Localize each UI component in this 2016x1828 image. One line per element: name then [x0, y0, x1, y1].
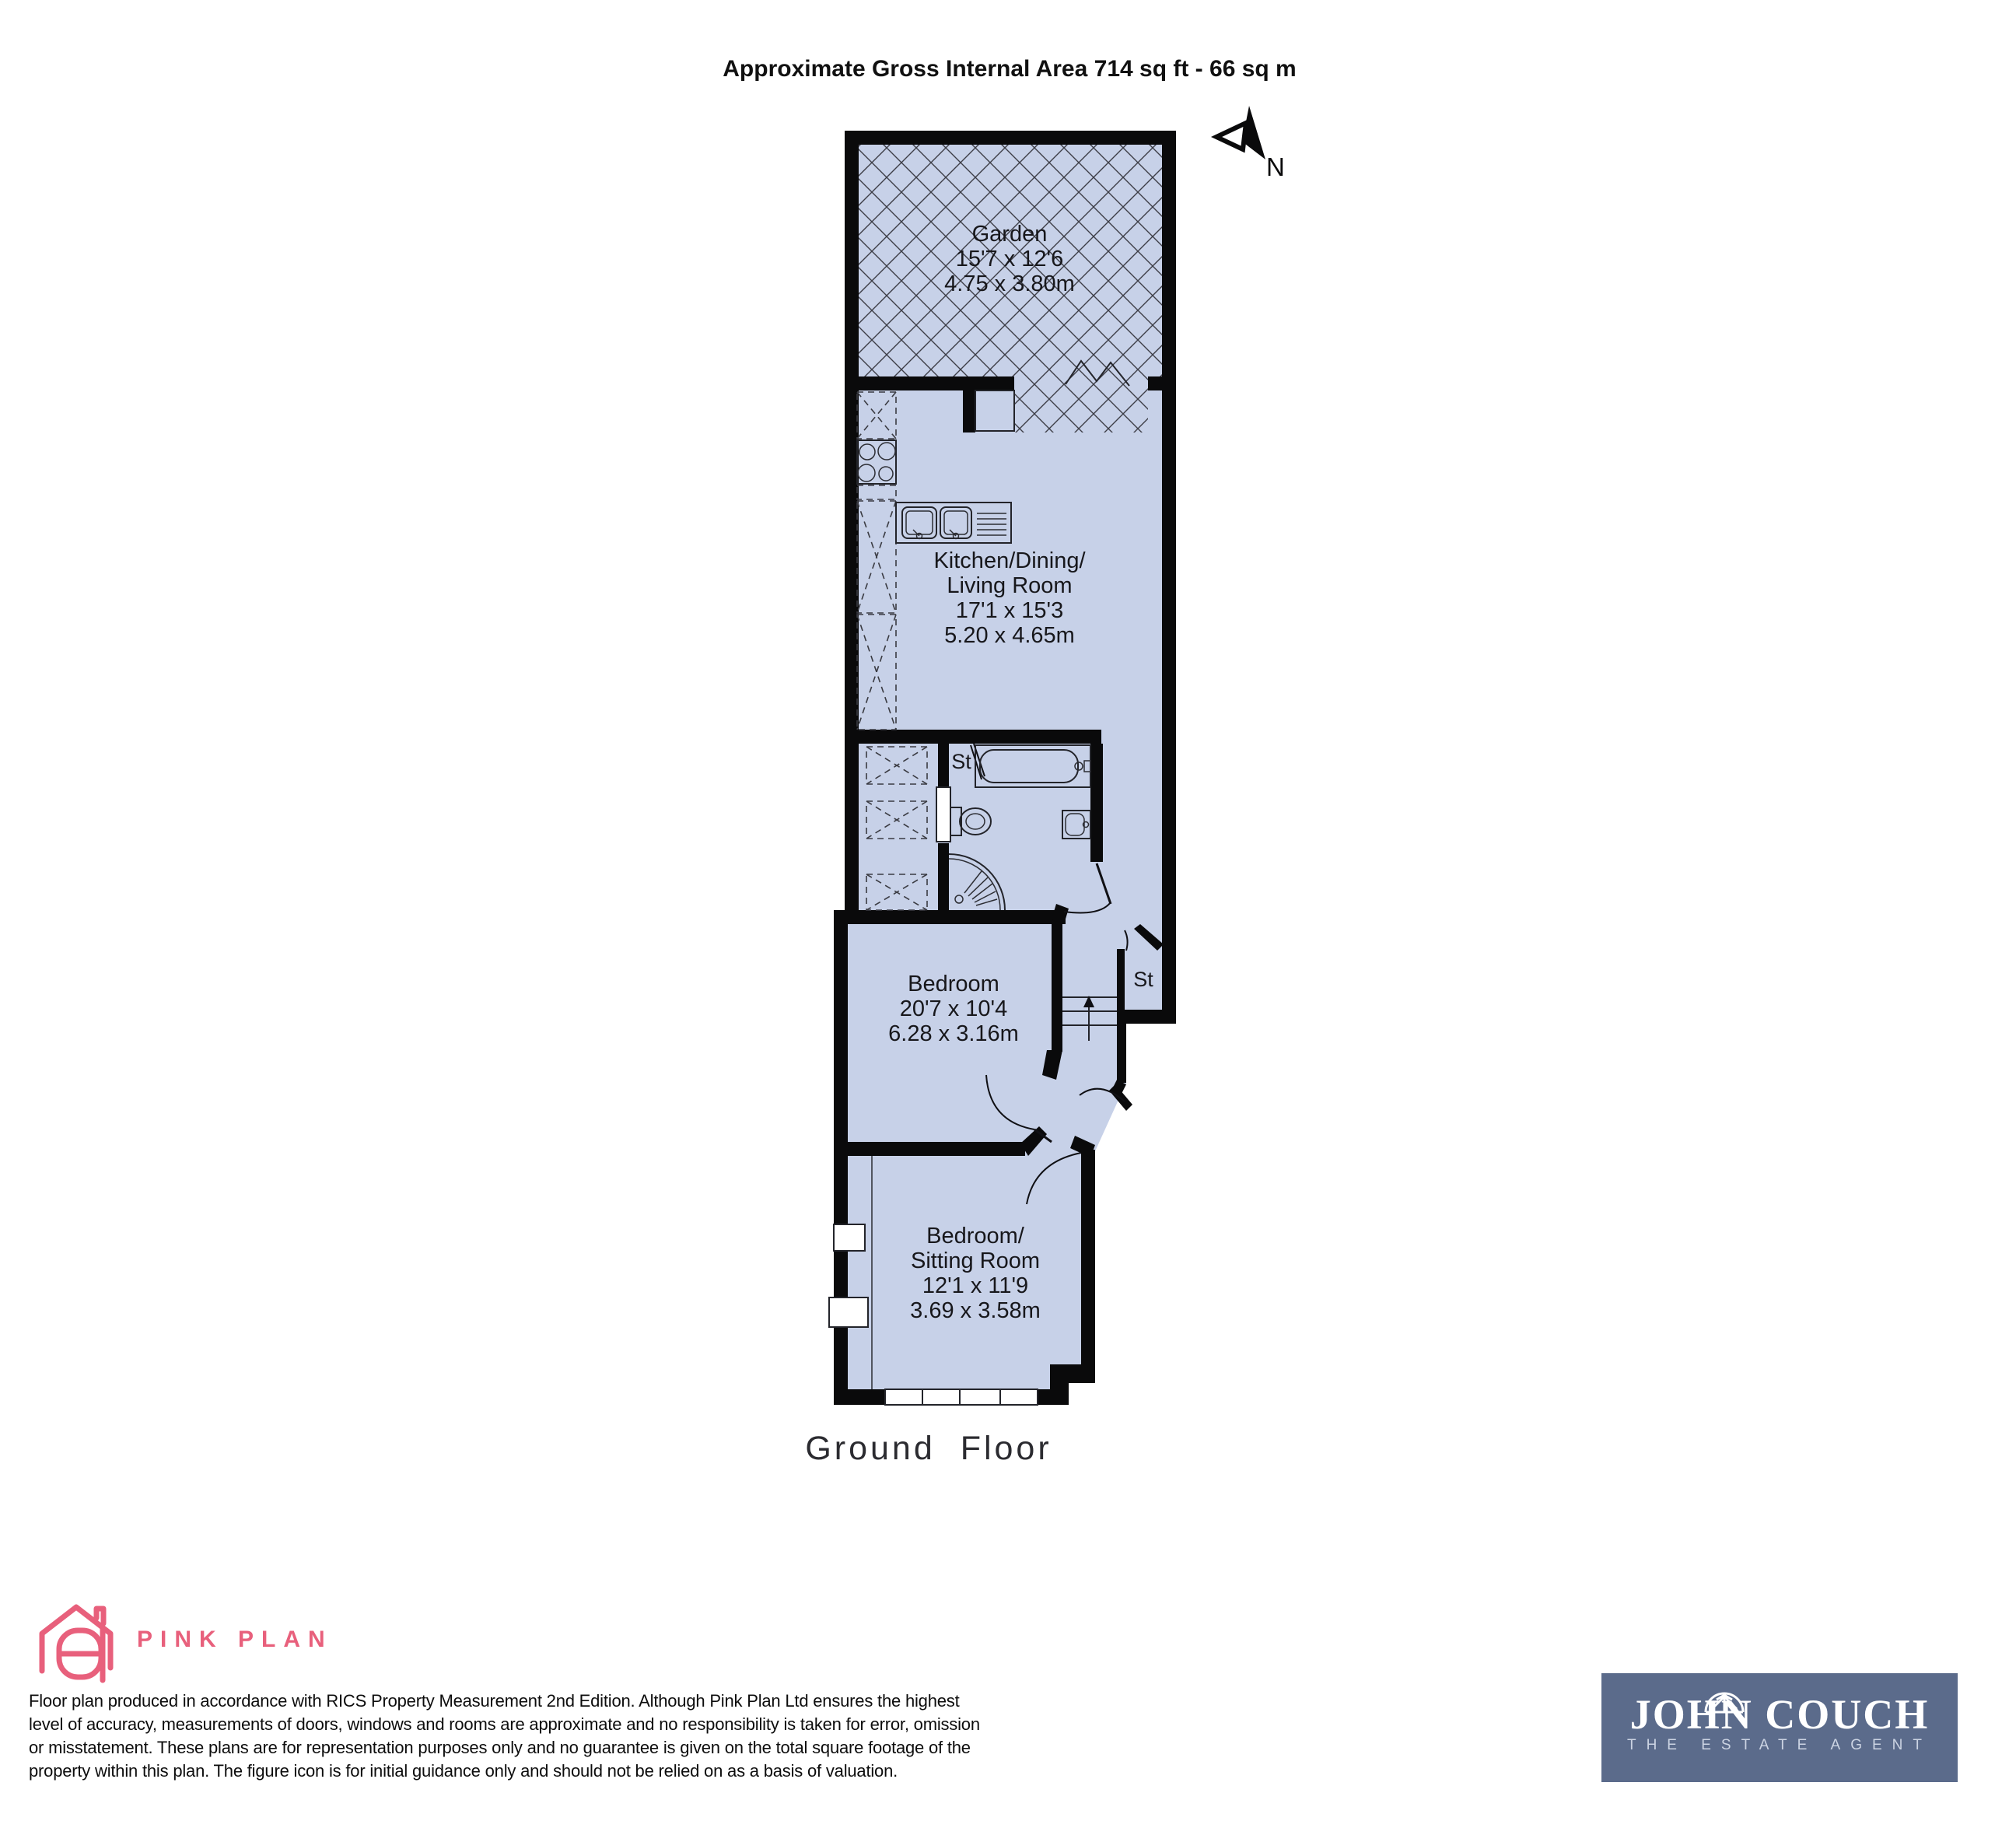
disclaimer: Floor plan produced in accordance with R… [29, 1690, 1195, 1783]
bedroom-dims-imperial: 20'7 x 10'4 [900, 996, 1007, 1021]
sitting-room-label-1: Bedroom/ [926, 1224, 1025, 1248]
north-label: N [1266, 152, 1285, 181]
agent-name: JOHN COUCH [1601, 1693, 1958, 1735]
floor-plan: Approximate Gross Internal Area 714 sq f… [0, 0, 2016, 1828]
pink-plan-brand: PINK PLAN [31, 1596, 333, 1683]
sitting-room-label-2: Sitting Room [911, 1248, 1040, 1273]
disclaimer-line: Floor plan produced in accordance with R… [29, 1690, 1195, 1713]
disclaimer-line: level of accuracy, measurements of doors… [29, 1713, 1195, 1736]
bedroom-label: Bedroom [908, 972, 999, 996]
fanlight-icon [1701, 1678, 1748, 1714]
disclaimer-line: property within this plan. The figure ic… [29, 1760, 1195, 1783]
kitchen-label-1: Kitchen/Dining/ [933, 548, 1086, 573]
disclaimer-line: or misstatement. These plans are for rep… [29, 1736, 1195, 1760]
garden-dims-metric: 4.75 x 3.80m [944, 271, 1075, 296]
north-arrow-icon: N [1216, 106, 1285, 181]
pink-plan-house-icon [31, 1596, 117, 1683]
bedroom-dims-metric: 6.28 x 3.16m [888, 1021, 1019, 1046]
alcove-recess [834, 1224, 865, 1251]
storage-bathroom-label: St [951, 750, 971, 773]
window-icon [885, 1389, 1038, 1405]
kitchen-dims-metric: 5.20 x 4.65m [944, 623, 1075, 648]
pink-plan-label: PINK PLAN [137, 1627, 333, 1653]
sitting-room-dims-metric: 3.69 x 3.58m [910, 1298, 1041, 1323]
hall-door [936, 787, 950, 842]
kitchen-label-2: Living Room [947, 573, 1072, 598]
agent-tagline: THE ESTATE AGENT [1601, 1737, 1958, 1754]
storage-hall-label: St [1133, 968, 1153, 991]
alcove-recess [829, 1297, 868, 1327]
kitchen-dims-imperial: 17'1 x 15'3 [956, 598, 1063, 623]
garden-dims-imperial: 15'7 x 12'6 [956, 247, 1063, 271]
floor-label: Ground Floor [805, 1430, 1052, 1467]
page-title: Approximate Gross Internal Area 714 sq f… [723, 56, 1296, 82]
sitting-room-dims-imperial: 12'1 x 11'9 [922, 1273, 1028, 1298]
agent-logo: JOHN COUCH THE ESTATE AGENT [1601, 1673, 1958, 1782]
garden-label: Garden [972, 222, 1048, 247]
